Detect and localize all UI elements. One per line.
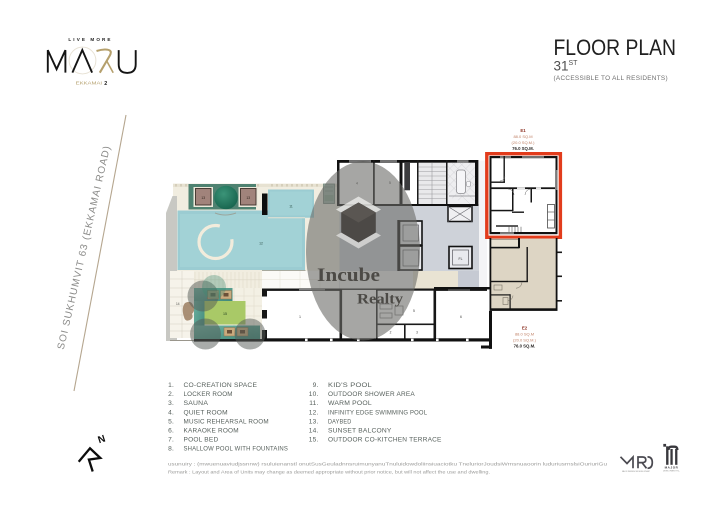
svg-text:8.: 8. xyxy=(168,446,174,453)
svg-text:88.0 SQ.M: 88.0 SQ.M xyxy=(515,332,534,337)
svg-text:3: 3 xyxy=(416,331,418,335)
svg-text:MAJOR: MAJOR xyxy=(665,466,679,470)
svg-text:DEVELOPMENT PCL.: DEVELOPMENT PCL. xyxy=(663,470,681,472)
svg-text:1.: 1. xyxy=(168,382,174,389)
svg-text:KID'S POOL: KID'S POOL xyxy=(328,382,372,389)
svg-text:E2: E2 xyxy=(522,326,528,331)
svg-text:10.: 10. xyxy=(309,391,319,398)
svg-text:WARM POOL: WARM POOL xyxy=(328,400,372,407)
svg-text:LOCKER ROOM: LOCKER ROOM xyxy=(184,391,233,398)
svg-text:12.: 12. xyxy=(309,409,319,416)
svg-text:usunuiry : (mwuenuaviudjssnnw): usunuiry : (mwuenuaviudjssnnw) rsuluiena… xyxy=(168,462,608,467)
svg-text:(ACCESSIBLE TO ALL RESIDENTS): (ACCESSIBLE TO ALL RESIDENTS) xyxy=(554,75,668,82)
svg-text:Remark : Layout and Area of Un: Remark : Layout and Area of Units may ch… xyxy=(168,469,490,474)
svg-text:9.: 9. xyxy=(313,382,319,389)
svg-text:SAUNA: SAUNA xyxy=(184,400,209,407)
svg-text:1: 1 xyxy=(299,315,301,319)
svg-text:2.: 2. xyxy=(168,391,174,398)
svg-text:3.: 3. xyxy=(168,400,174,407)
svg-text:15: 15 xyxy=(223,312,227,316)
svg-text:DAYBED: DAYBED xyxy=(328,418,351,425)
svg-text:KARAOKE ROOM: KARAOKE ROOM xyxy=(184,428,239,435)
svg-text:13.: 13. xyxy=(309,418,319,425)
svg-text:11: 11 xyxy=(289,205,293,209)
svg-text:(20.0 SQ.M.): (20.0 SQ.M.) xyxy=(513,337,537,342)
svg-text:2: 2 xyxy=(104,81,107,87)
svg-text:OUTDOOR SHOWER AREA: OUTDOOR SHOWER AREA xyxy=(328,391,415,398)
svg-text:2: 2 xyxy=(390,331,392,335)
svg-text:76.0 SQ.M.: 76.0 SQ.M. xyxy=(514,343,536,348)
svg-text:EKKAMAI: EKKAMAI xyxy=(76,81,103,86)
svg-text:88.0 SQ.M: 88.0 SQ.M xyxy=(513,134,532,139)
svg-text:(20.0 SQ.M.): (20.0 SQ.M.) xyxy=(512,140,536,145)
svg-text:13: 13 xyxy=(246,196,250,200)
svg-text:SUNSET BALCONY: SUNSET BALCONY xyxy=(328,428,392,435)
svg-text:13: 13 xyxy=(201,196,205,200)
svg-text:14: 14 xyxy=(176,302,180,306)
svg-text:Realty: Realty xyxy=(357,292,404,308)
svg-text:INFINITY EDGE SWIMMING POOL: INFINITY EDGE SWIMMING POOL xyxy=(328,409,427,416)
svg-text:12: 12 xyxy=(259,242,263,246)
svg-text:MAJOR RESIDENCES DEVELOPMENT: MAJOR RESIDENCES DEVELOPMENT xyxy=(622,470,651,473)
svg-text:CO-CREATION SPACE: CO-CREATION SPACE xyxy=(184,382,258,389)
svg-text:MUSIC REHEARSAL ROOM: MUSIC REHEARSAL ROOM xyxy=(184,418,269,425)
svg-text:FLOOR PLAN: FLOOR PLAN xyxy=(554,35,677,60)
svg-text:11.: 11. xyxy=(309,400,318,407)
svg-text:SHALLOW POOL WITH FOUNTAINS: SHALLOW POOL WITH FOUNTAINS xyxy=(184,446,289,453)
svg-text:OUTDOOR CO-KITCHEN TERRACE: OUTDOOR CO-KITCHEN TERRACE xyxy=(328,437,442,444)
svg-text:4.: 4. xyxy=(168,409,174,416)
svg-text:Incube: Incube xyxy=(317,266,380,286)
svg-text:POOL BED: POOL BED xyxy=(184,437,219,444)
svg-text:7.: 7. xyxy=(168,437,174,444)
svg-text:14.: 14. xyxy=(309,428,319,435)
svg-text:31: 31 xyxy=(554,59,569,74)
svg-text:15.: 15. xyxy=(309,437,319,444)
svg-text:FL: FL xyxy=(459,257,463,261)
svg-text:LIVE MORE: LIVE MORE xyxy=(68,37,112,42)
svg-text:QUIET ROOM: QUIET ROOM xyxy=(184,409,228,416)
svg-text:6: 6 xyxy=(460,315,462,319)
svg-text:6.: 6. xyxy=(168,428,174,435)
svg-text:E1: E1 xyxy=(520,128,526,133)
svg-text:5: 5 xyxy=(413,309,415,313)
svg-text:ST: ST xyxy=(569,60,579,67)
svg-text:76.0 SQ.M.: 76.0 SQ.M. xyxy=(512,146,534,151)
svg-text:5.: 5. xyxy=(168,418,174,425)
